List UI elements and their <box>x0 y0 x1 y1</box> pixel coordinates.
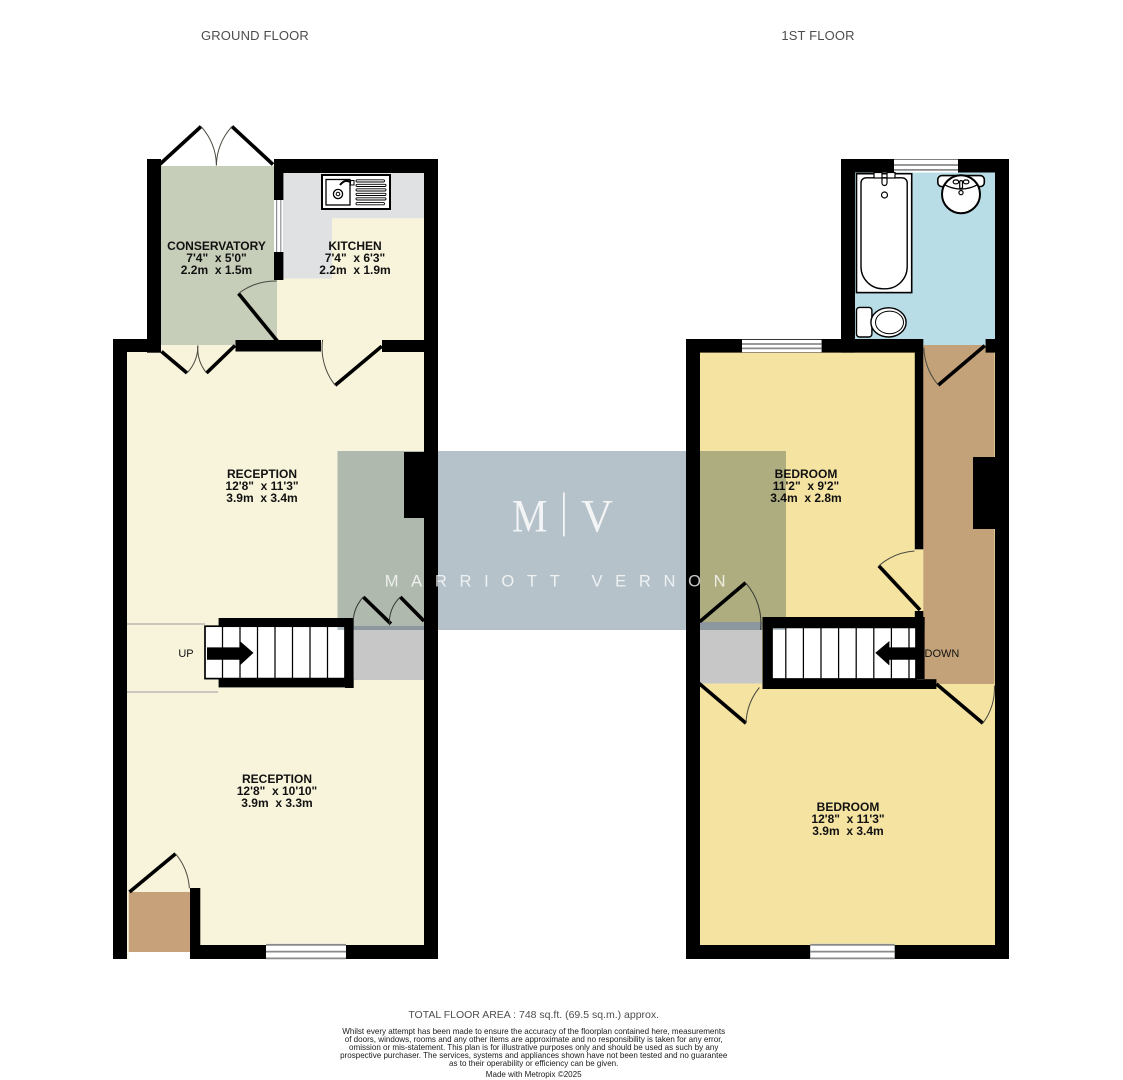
svg-text:2.2m x 1.5m: 2.2m x 1.5m <box>181 263 252 277</box>
svg-text:TOTAL FLOOR AREA : 748 sq.ft.: TOTAL FLOOR AREA : 748 sq.ft. (69.5 sq.m… <box>408 1009 659 1021</box>
svg-text:2.2m x 1.9m: 2.2m x 1.9m <box>319 263 390 277</box>
svg-text:1ST FLOOR: 1ST FLOOR <box>781 28 854 43</box>
svg-text:Made with Metropix ©2025: Made with Metropix ©2025 <box>486 1070 582 1079</box>
svg-text:DOWN: DOWN <box>925 648 960 660</box>
svg-text:M: M <box>512 491 548 543</box>
svg-text:MARRIOTT VERNON: MARRIOTT VERNON <box>385 573 739 591</box>
svg-text:3.9m x 3.4m: 3.9m x 3.4m <box>812 824 883 838</box>
svg-text:GROUND FLOOR: GROUND FLOOR <box>201 28 309 43</box>
svg-text:3.9m x 3.3m: 3.9m x 3.3m <box>241 796 312 810</box>
svg-text:UP: UP <box>178 648 193 660</box>
svg-text:as to their operability or eff: as to their operability or efficiency ca… <box>449 1059 618 1068</box>
svg-text:V: V <box>581 491 613 543</box>
svg-text:3.9m x 3.4m: 3.9m x 3.4m <box>226 491 297 505</box>
